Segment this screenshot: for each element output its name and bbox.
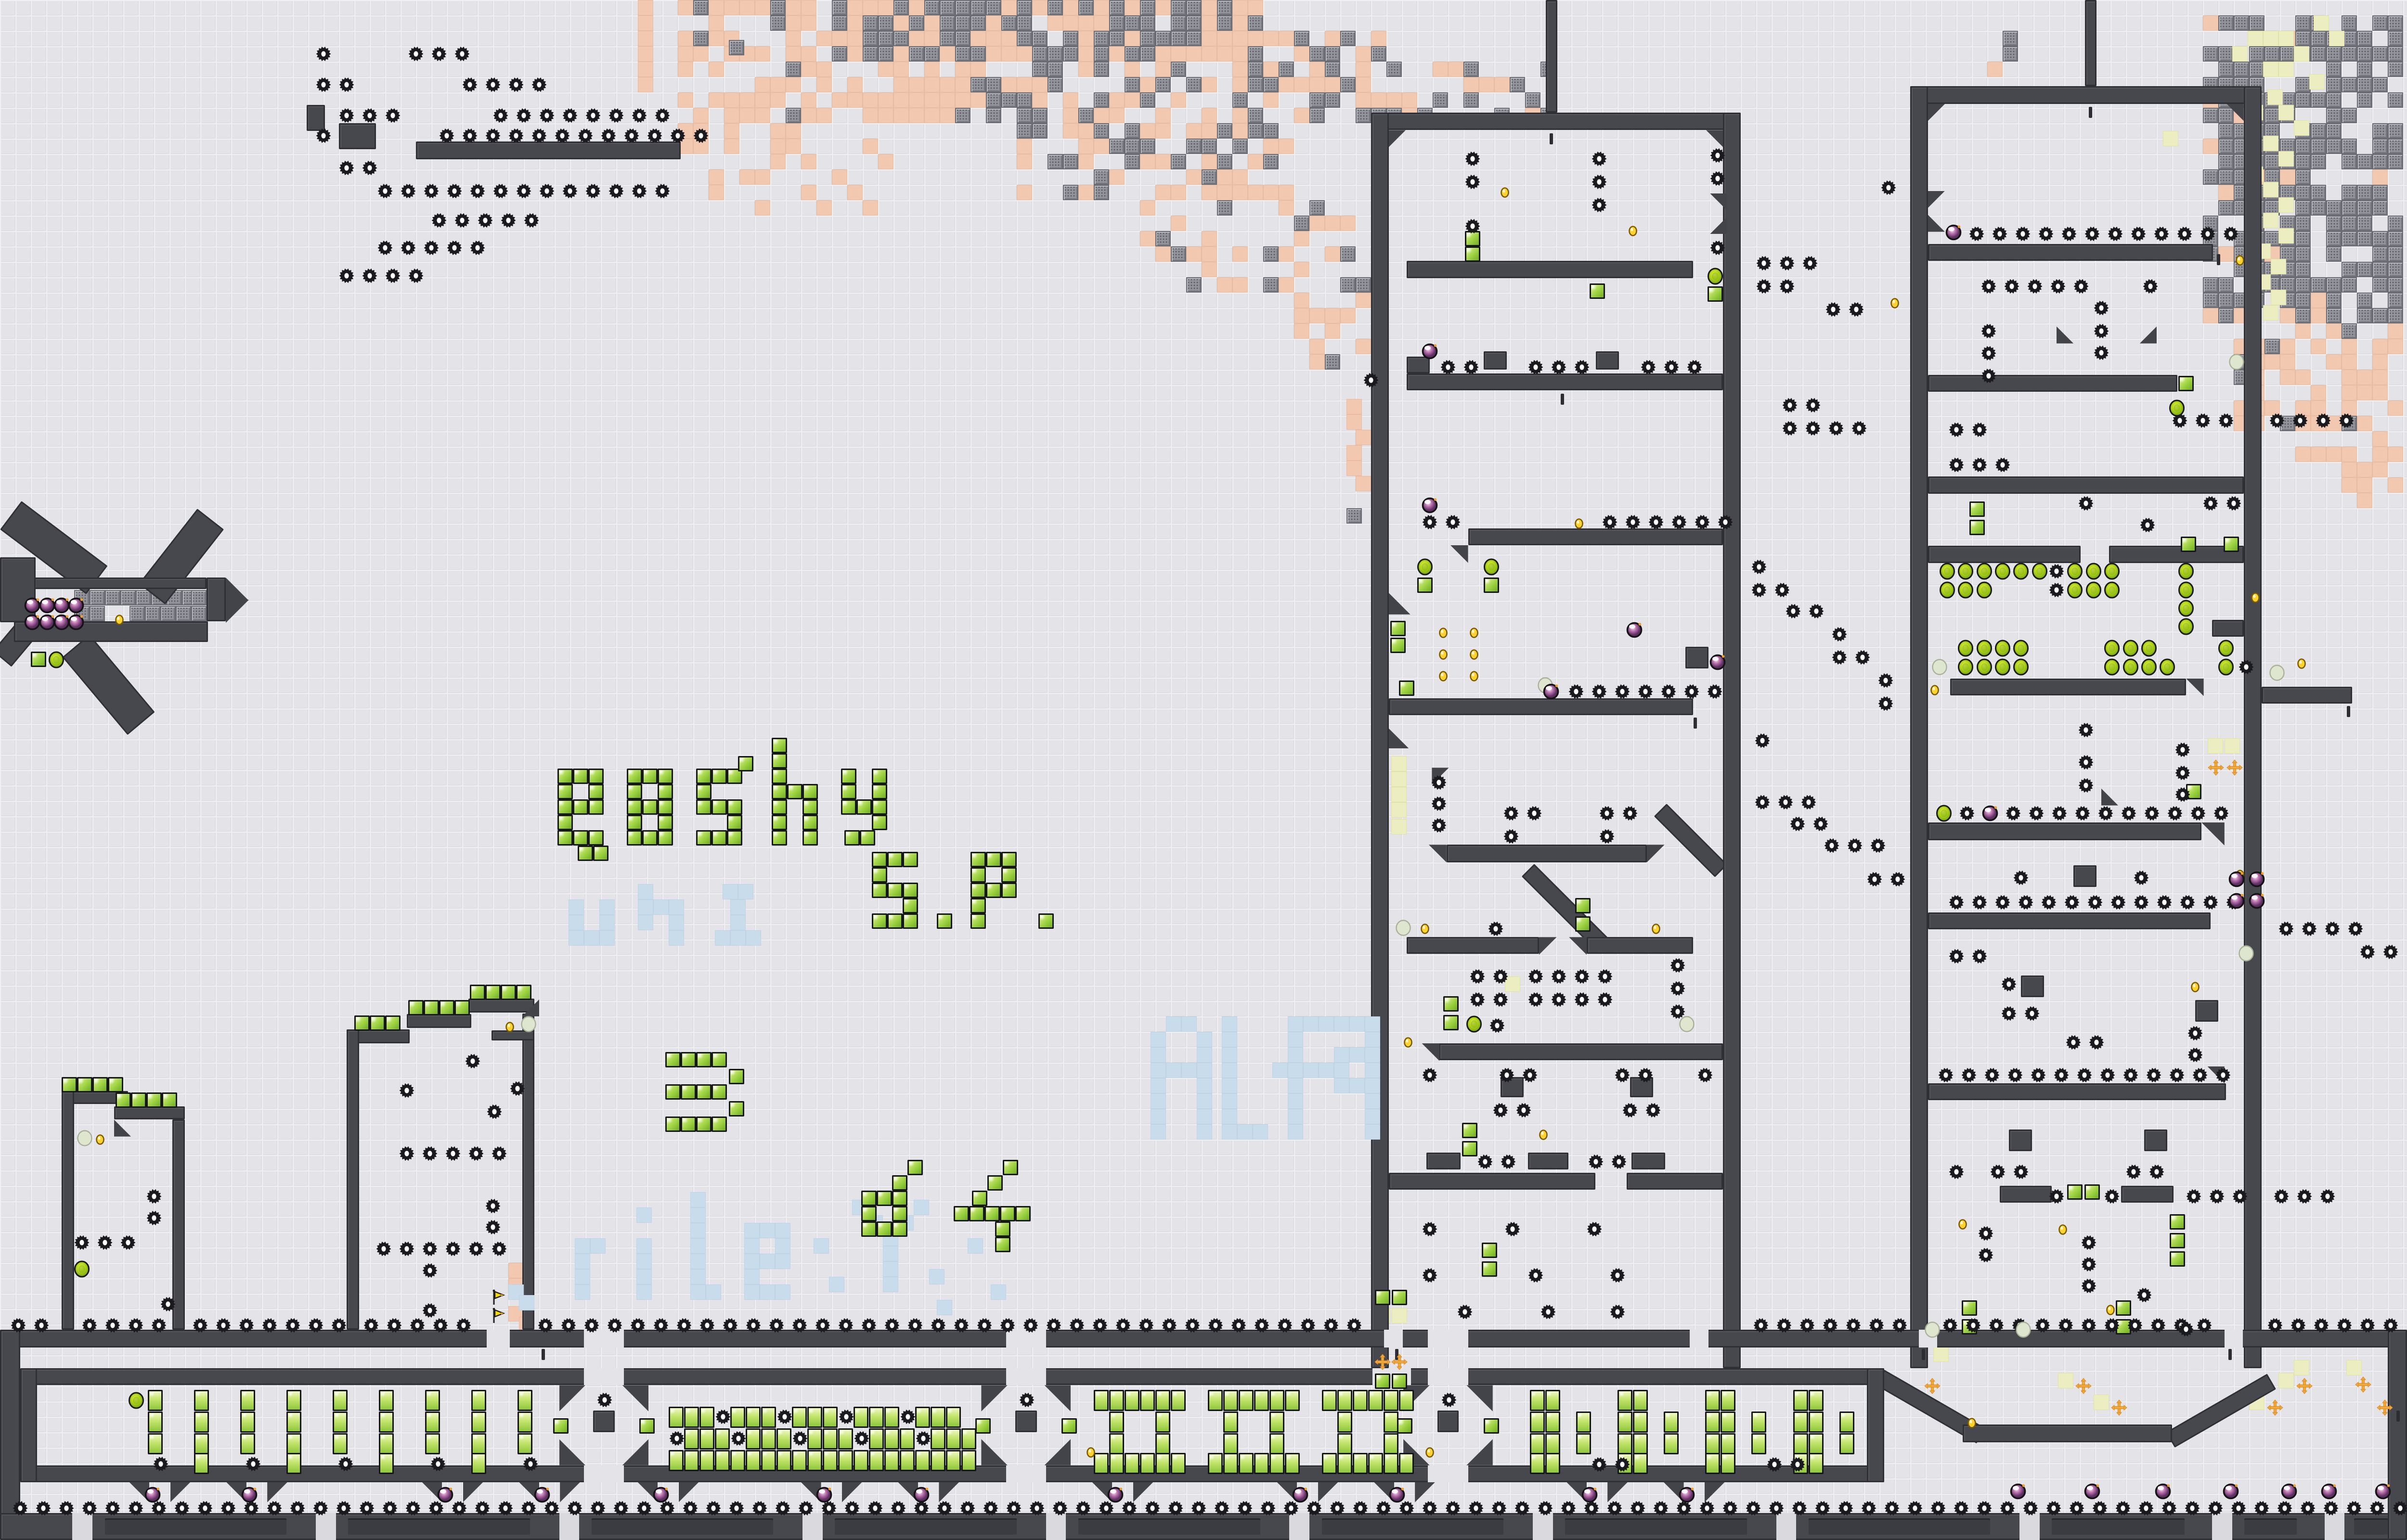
factory-cloud-tile: [1032, 46, 1048, 62]
gear-icon: [1422, 1268, 1437, 1283]
gear-icon: [428, 1501, 444, 1516]
gear-icon: [1431, 818, 1447, 833]
salmon-cloud-tile: [1232, 0, 1248, 15]
factory-cloud-tile: [971, 46, 986, 62]
salmon-cloud-tile: [786, 0, 801, 15]
gear-icon: [2131, 226, 2146, 242]
blue-letter-tile: [638, 899, 653, 915]
green-brick: [823, 1407, 838, 1428]
salmon-cloud-tile: [878, 92, 893, 108]
gear-icon: [2300, 1501, 2316, 1516]
salmon-cloud-tile: [1202, 246, 1217, 262]
salmon-cloud-tile: [786, 46, 801, 62]
salmon-cloud-tile: [1356, 62, 1371, 77]
green-brick: [1269, 1390, 1284, 1411]
wall-block: [1596, 351, 1619, 370]
gear-icon: [220, 1501, 236, 1516]
green-letter-block: [712, 1052, 727, 1067]
green-brick: [1384, 1433, 1398, 1454]
orange-cross-icon: [2297, 1378, 2312, 1394]
salmon-cloud-tile: [2357, 370, 2372, 385]
factory-cloud-tile: [2203, 46, 2218, 62]
gear-icon: [1782, 398, 1798, 413]
blue-letter-tile: [1197, 1093, 1212, 1109]
factory-cloud-tile: [2295, 277, 2311, 293]
salmon-tile: [638, 46, 653, 62]
salmon-cloud-tile: [2372, 370, 2388, 385]
salmon-cloud-tile: [709, 92, 724, 108]
gear-icon: [2297, 1189, 2312, 1204]
gear-icon: [523, 1456, 538, 1472]
blue-letter-tile: [575, 1254, 590, 1269]
green-letter-block: [593, 846, 608, 861]
wall-block: [114, 1106, 185, 1119]
gear-icon: [1610, 1268, 1625, 1283]
pale-orb-icon: [521, 1016, 536, 1032]
lime-icon: [2013, 564, 2029, 579]
green-letter-block: [588, 769, 604, 784]
factory-cloud-tile: [1140, 0, 1155, 15]
green-letter-block: [696, 784, 712, 799]
gear-icon: [1802, 256, 1818, 271]
wall-block: [1407, 937, 1539, 954]
plum-bomb-icon: [534, 1487, 550, 1502]
salmon-cloud-tile: [1279, 77, 1294, 92]
gear-icon: [1824, 838, 1839, 853]
green-block: [408, 1000, 424, 1015]
pale-yellow-tile: [2294, 1360, 2309, 1375]
coin-icon: [1887, 295, 1902, 311]
lime-icon: [2141, 641, 2157, 656]
blue-letter-tile: [1197, 1047, 1212, 1063]
pale-yellow-tile: [2278, 62, 2294, 77]
salmon-cloud-tile: [2342, 354, 2357, 370]
pale-yellow-tile: [2263, 62, 2278, 77]
salmon-cloud-tile: [724, 0, 739, 15]
blue-letter-tile: [1222, 1109, 1237, 1124]
blue-letter-tile: [1334, 1016, 1349, 1032]
green-block: [1482, 1261, 1497, 1277]
green-block: [146, 1092, 162, 1108]
blue-letter-tile: [829, 1277, 844, 1292]
gear-icon: [2203, 496, 2218, 511]
plum-bomb-icon: [1710, 654, 1725, 670]
orange-cross-icon: [2111, 1400, 2127, 1415]
green-block: [1390, 621, 1406, 636]
green-letter-block: [627, 830, 642, 846]
salmon-cloud-tile: [1325, 31, 1340, 46]
green-letter-block: [971, 913, 986, 929]
gear-icon: [2167, 806, 2183, 821]
wall-slope: [1133, 1482, 1153, 1502]
wall-diagonal: [2166, 1373, 2276, 1447]
factory-cloud-tile: [1510, 77, 1525, 92]
gear-icon: [216, 1318, 231, 1333]
gear-icon: [601, 128, 616, 143]
salmon-cloud-tile: [816, 62, 832, 77]
green-brick: [194, 1453, 209, 1474]
green-brick: [1223, 1390, 1238, 1411]
salmon-cloud-tile: [2372, 447, 2388, 462]
salmon-cloud-tile: [1309, 339, 1325, 354]
gear-icon: [2208, 1501, 2223, 1516]
blue-letter-tile: [1222, 1093, 1237, 1109]
gear-icon: [2069, 1501, 2084, 1516]
factory-cloud-tile: [2342, 216, 2357, 231]
wall-block: [1546, 0, 1557, 113]
plum-bomb-icon: [2084, 1484, 2100, 1499]
factory-cloud-tile: [2372, 308, 2388, 323]
factory-cloud-tile: [2388, 262, 2403, 277]
gear-icon: [1969, 226, 1984, 242]
factory-cloud-tile: [971, 77, 986, 92]
gear-icon: [1790, 816, 1805, 832]
lime-icon: [2104, 564, 2120, 579]
tick-mark: [2347, 706, 2350, 717]
gear-icon: [2127, 1318, 2143, 1333]
gear-icon: [636, 1501, 652, 1516]
gear-icon: [884, 1318, 900, 1333]
blue-letter-tile: [775, 1254, 790, 1269]
green-brick: [730, 1407, 745, 1428]
factory-cloud-tile: [2265, 46, 2280, 62]
plum-bomb-icon: [2281, 1484, 2297, 1499]
gear-icon: [798, 1501, 814, 1516]
blue-letter-tile: [1222, 1032, 1237, 1047]
salmon-cloud-tile: [1032, 0, 1048, 15]
salmon-cloud-tile: [1202, 185, 1217, 200]
wall-block: [2212, 620, 2244, 637]
green-brick: [1254, 1390, 1269, 1411]
factory-cloud-tile: [1140, 46, 1155, 62]
gear-icon: [1052, 1501, 1068, 1516]
factory-cloud-tile: [2342, 231, 2357, 246]
green-brick: [1721, 1453, 1735, 1474]
gear-icon: [1277, 1318, 1293, 1333]
factory-cloud-tile: [832, 0, 847, 15]
lime-icon: [1995, 659, 2010, 675]
wall-slope: [622, 1385, 648, 1411]
gear-icon: [2001, 976, 2017, 992]
gear-icon: [1307, 1501, 1322, 1516]
green-letter-block: [907, 1160, 923, 1175]
green-block: [1375, 1290, 1390, 1305]
gear-icon: [2254, 1501, 2269, 1516]
gear-icon: [1779, 256, 1795, 271]
factory-cloud-tile: [1017, 123, 1032, 139]
green-letter-block: [696, 1084, 712, 1100]
factory-cloud-tile: [1048, 62, 1063, 77]
salmon-cloud-tile: [1155, 123, 1171, 139]
gear-icon: [524, 213, 539, 228]
wall-slope: [1318, 1482, 1338, 1502]
gear-icon: [2169, 1067, 2185, 1083]
factory-cloud-tile: [955, 0, 971, 15]
factory-cloud-tile: [2388, 46, 2403, 62]
green-letter-block: [588, 799, 604, 815]
pale-yellow-tile: [2278, 228, 2294, 244]
plum-bomb-icon: [54, 598, 69, 613]
green-letter-block: [986, 883, 1001, 898]
gear-icon: [1527, 806, 1542, 821]
blue-letter-tile: [775, 1223, 790, 1238]
factory-cloud-tile: [2357, 200, 2372, 216]
factory-cloud-tile: [2342, 277, 2357, 293]
salmon-cloud-tile: [816, 200, 832, 216]
green-brick: [1545, 1453, 1560, 1474]
gear-icon: [2325, 921, 2340, 937]
green-letter-block: [772, 738, 787, 753]
salmon-cloud-tile: [1263, 92, 1279, 108]
gear-icon: [1978, 1226, 1993, 1241]
salmon-cloud-tile: [1463, 77, 1479, 92]
salmon-cloud-tile: [832, 92, 847, 108]
green-brick: [240, 1390, 255, 1411]
gear-icon: [1670, 981, 1685, 996]
blue-letter-tile: [1197, 1078, 1212, 1093]
blue-letter-tile: [1151, 1063, 1166, 1078]
factory-cloud-tile: [2203, 277, 2218, 293]
salmon-cloud-tile: [986, 31, 1001, 46]
green-letter-block: [971, 852, 986, 867]
factory-cloud-tile: [971, 0, 986, 15]
factory-cloud-tile: [1325, 62, 1340, 77]
salmon-cloud-tile: [1171, 46, 1186, 62]
wall-slope: [2186, 679, 2204, 696]
salmon-cloud-tile: [1078, 62, 1094, 77]
green-letter-block: [681, 1116, 696, 1132]
green-brick: [194, 1412, 209, 1433]
gear-icon: [1465, 174, 1480, 190]
gear-icon: [1503, 806, 1519, 821]
pale-orb-icon: [1932, 659, 1947, 675]
gear-icon: [2029, 806, 2044, 821]
gear-icon: [792, 1431, 808, 1446]
salmon-cloud-tile: [1063, 123, 1078, 139]
gear-icon: [2000, 1501, 2015, 1516]
gear-icon: [2138, 1501, 2154, 1516]
gear-icon: [2001, 1006, 2017, 1021]
green-letter-block: [712, 1116, 727, 1132]
salmon-cloud-tile: [1001, 31, 1017, 46]
green-letter-block: [954, 1206, 969, 1221]
factory-cloud-tile: [1186, 15, 1202, 31]
gear-icon: [313, 1501, 328, 1516]
salmon-cloud-tile: [1125, 0, 1140, 15]
factory-cloud-tile: [1294, 216, 1309, 231]
gear-icon: [498, 1501, 513, 1516]
level-canvas[interactable]: [0, 0, 2407, 1540]
factory-cloud-tile: [1125, 154, 1140, 169]
factory-cloud-tile: [2357, 46, 2372, 62]
factory-cloud-tile: [2003, 46, 2018, 62]
gear-icon: [1722, 1501, 1738, 1516]
pale-yellow-tile: [1391, 756, 1407, 771]
salmon-cloud-tile: [755, 108, 770, 123]
salmon-cloud-tile: [1371, 31, 1386, 46]
wall-block: [34, 577, 206, 589]
gear-icon: [731, 1431, 746, 1446]
green-brick: [333, 1433, 348, 1454]
factory-cloud-tile: [1140, 31, 1155, 46]
green-letter-block: [903, 852, 918, 867]
green-brick: [823, 1428, 838, 1450]
blue-letter-tile: [775, 1284, 790, 1300]
green-brick: [1155, 1433, 1170, 1454]
green-letter-block: [772, 799, 787, 815]
gear-icon: [2269, 413, 2285, 428]
factory-cloud-tile: [1140, 139, 1155, 154]
green-letter-block: [681, 1084, 696, 1100]
green-brick: [699, 1450, 714, 1471]
gear-icon: [485, 77, 501, 92]
connector-core: [1437, 1411, 1459, 1432]
factory-cloud-tile: [2218, 154, 2234, 169]
gear-icon: [1441, 1392, 1457, 1408]
gear-icon: [244, 1501, 259, 1516]
plum-bomb-icon: [2249, 872, 2265, 887]
green-brick: [1809, 1390, 1824, 1411]
green-brick: [379, 1390, 394, 1411]
salmon-cloud-tile: [940, 77, 955, 92]
green-letter-block: [802, 799, 818, 815]
salmon-cloud-tile: [1140, 154, 1155, 169]
blue-letter-tile: [690, 1269, 706, 1284]
blue-letter-tile: [1222, 1063, 1237, 1078]
gear-icon: [492, 1241, 507, 1257]
recessed-panel: [1565, 1518, 1747, 1535]
gear-icon: [1878, 673, 1893, 688]
green-brick: [1208, 1453, 1223, 1474]
gear-icon: [1981, 368, 1996, 384]
pale-yellow-tile: [2329, 31, 2344, 46]
green-letter-block: [969, 1206, 984, 1221]
green-letter-block: [573, 769, 588, 784]
blue-letter-tile: [575, 1238, 590, 1254]
salmon-cloud-tile: [2203, 15, 2218, 31]
gear-icon: [1966, 1318, 1981, 1333]
green-brick: [1705, 1453, 1720, 1474]
green-brick: [931, 1450, 945, 1471]
wall-block: [1389, 1173, 1595, 1190]
lime-icon: [2086, 564, 2101, 579]
blue-letter-tile: [1237, 1124, 1253, 1140]
salmon-cloud-tile: [1202, 46, 1217, 62]
green-letter-block: [642, 799, 658, 815]
gear-icon: [706, 1501, 721, 1516]
gear-icon: [1376, 1501, 1391, 1516]
gear-icon: [2175, 765, 2190, 781]
gear-icon: [1574, 992, 1590, 1007]
factory-cloud-tile: [1094, 31, 1109, 46]
blue-letter-tile: [636, 1207, 652, 1223]
gear-icon: [454, 213, 470, 228]
green-block: [1375, 1373, 1390, 1389]
gear-icon: [1881, 180, 1896, 195]
gear-icon: [153, 1456, 168, 1472]
green-letter-block: [887, 883, 903, 898]
plum-bomb-icon: [438, 1487, 453, 1502]
green-brick: [807, 1450, 822, 1471]
gear-icon: [493, 183, 508, 199]
coin-icon: [2232, 253, 2248, 268]
gear-icon: [1115, 1318, 1131, 1333]
gear-icon: [937, 1501, 952, 1516]
gear-icon: [336, 1501, 351, 1516]
salmon-cloud-tile: [678, 92, 693, 108]
gear-icon: [1805, 398, 1821, 413]
pillar-slot: [1289, 1513, 1309, 1540]
gear-icon: [485, 128, 501, 143]
gear-icon: [2004, 279, 2019, 294]
green-brick: [148, 1433, 163, 1454]
coin-icon: [112, 612, 127, 628]
gear-icon: [2231, 1501, 2246, 1516]
salmon-cloud-tile: [801, 0, 816, 15]
lime-icon: [2178, 601, 2194, 616]
green-brick: [761, 1407, 776, 1428]
factory-cloud-tile: [1017, 92, 1032, 108]
wall-slope: [226, 577, 249, 601]
green-block: [370, 1015, 385, 1031]
factory-cloud-tile: [940, 0, 955, 15]
gear-icon: [1353, 1501, 1368, 1516]
factory-cloud-tile: [1063, 185, 1078, 200]
green-brick: [1337, 1453, 1352, 1474]
green-letter-block: [658, 784, 673, 799]
green-brick: [961, 1450, 976, 1471]
gear-icon: [1422, 1067, 1437, 1083]
lime-icon: [129, 1393, 144, 1408]
gear-icon: [430, 1456, 446, 1472]
lime-icon: [74, 1261, 90, 1277]
salmon-cloud-tile: [1279, 139, 1294, 154]
gear-icon: [431, 213, 447, 228]
wall-block: [1928, 912, 2211, 929]
salmon-cloud-tile: [709, 0, 724, 15]
gear-icon: [1707, 684, 1722, 699]
factory-cloud-tile: [2388, 123, 2403, 139]
salmon-cloud-tile: [1325, 77, 1340, 92]
green-letter-block: [995, 1237, 1010, 1252]
salmon-cloud-tile: [739, 92, 755, 108]
gear-icon: [2323, 1501, 2339, 1516]
salmon-cloud-tile: [2388, 447, 2403, 462]
salmon-cloud-tile: [1279, 246, 1294, 262]
gear-icon: [1638, 684, 1653, 699]
factory-cloud-tile: [2388, 308, 2403, 323]
green-block: [354, 1015, 370, 1031]
green-brick: [900, 1450, 915, 1471]
gear-icon: [584, 1318, 599, 1333]
green-brick: [1633, 1412, 1648, 1433]
factory-cloud-tile: [2357, 216, 2372, 231]
gear-icon: [1977, 1501, 1992, 1516]
green-brick: [1793, 1433, 1808, 1454]
green-letter-block: [872, 799, 887, 815]
green-brick: [286, 1390, 301, 1411]
gear-icon: [1522, 1067, 1538, 1083]
gear-icon: [1753, 1318, 1769, 1333]
salmon-cloud-tile: [678, 0, 693, 15]
gear-icon: [1825, 302, 1841, 317]
green-brick: [946, 1407, 961, 1428]
gear-icon: [2023, 1501, 2038, 1516]
gear-icon: [1838, 1501, 1853, 1516]
salmon-cloud-tile: [1340, 216, 1356, 231]
gear-icon: [410, 1318, 425, 1333]
green-brick: [1239, 1390, 1254, 1411]
